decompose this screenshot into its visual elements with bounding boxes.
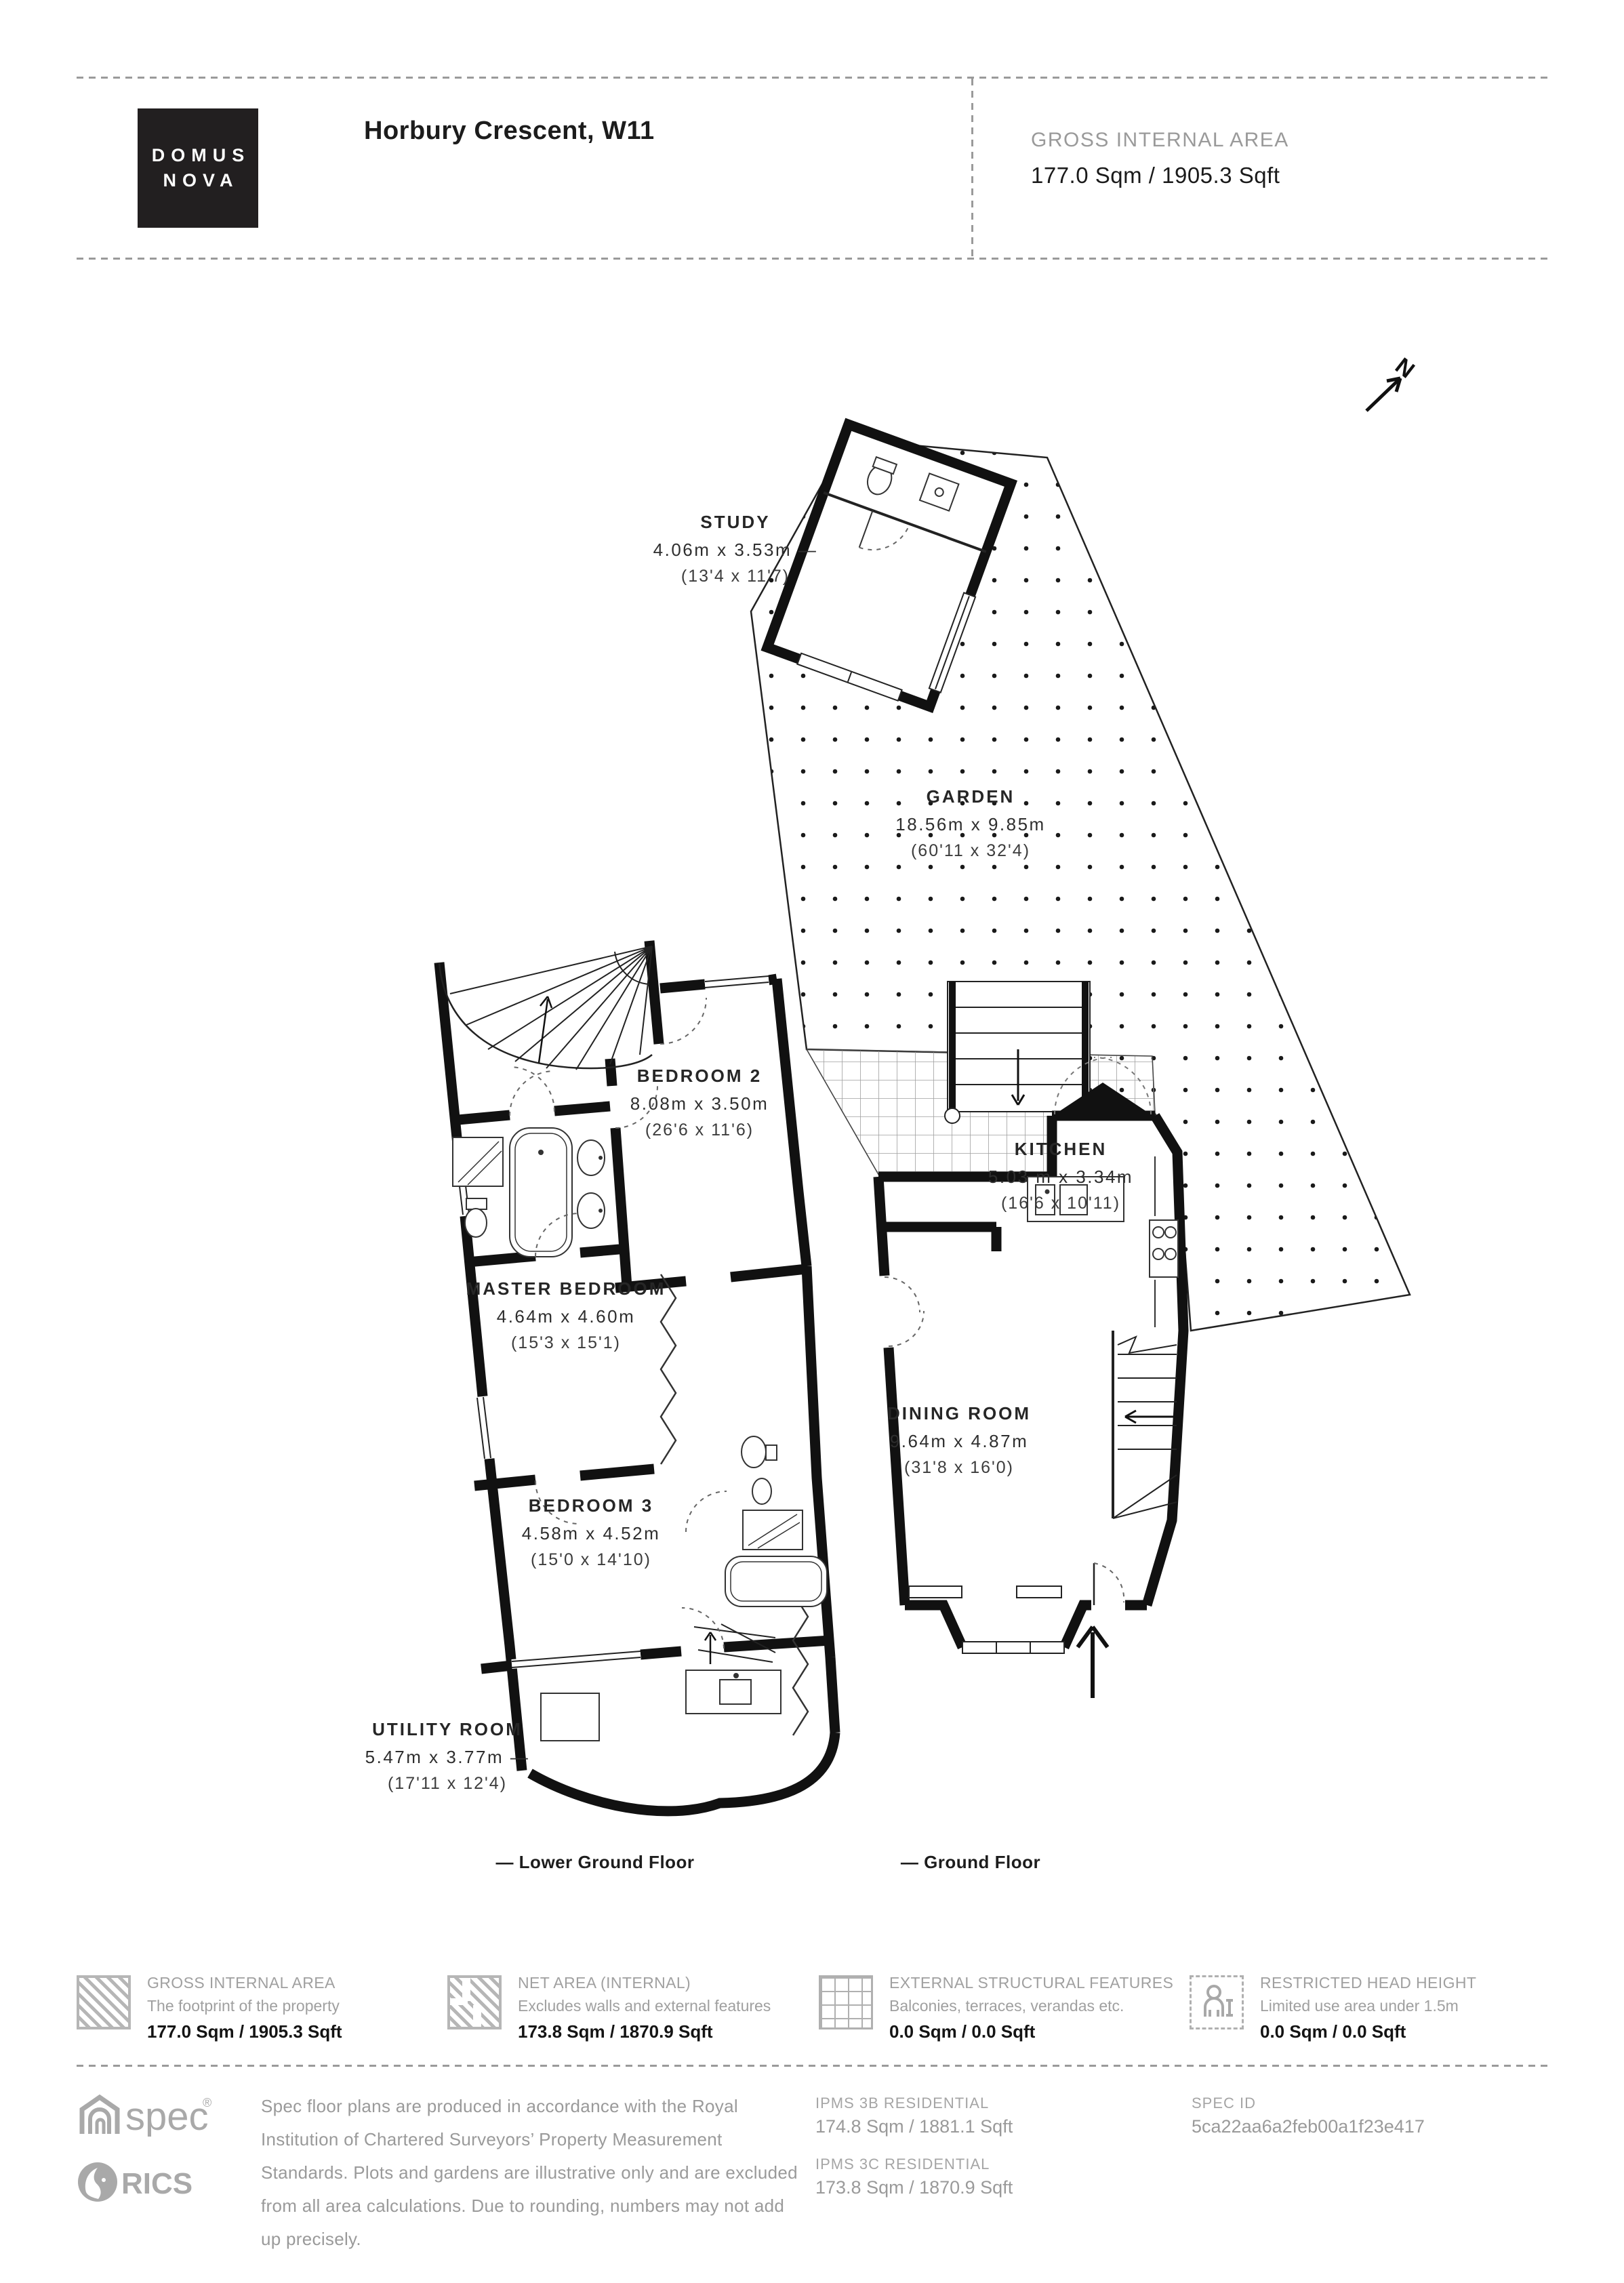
floor-caption-lower-ground: — Lower Ground Floor (495, 1852, 694, 1873)
ground-floor-plan (751, 424, 1410, 1698)
hatched-plan-icon (447, 1975, 502, 2029)
floorplan-page: DOMUS NOVA Horbury Crescent, W11 GROSS I… (0, 0, 1624, 2283)
header-bottom-dashed-rule (77, 258, 1547, 260)
ipms3b-label: IPMS 3B RESIDENTIAL (815, 2095, 989, 2112)
ipms3c-value: 173.8 Sqm / 1870.9 Sqft (815, 2177, 1013, 2198)
room-label-dining-room: DINING ROOM 9.64m x 4.87m (31'8 x 16'0) (887, 1403, 1031, 1478)
gross-internal-area-value: 177.0 Sqm / 1905.3 Sqft (1031, 163, 1280, 188)
disclaimer-line-5: up precisely. (261, 2229, 361, 2250)
domus-nova-logo: DOMUS NOVA (138, 108, 258, 228)
hatched-square-icon (77, 1975, 131, 2029)
north-arrow (1366, 378, 1400, 411)
disclaimer-line-1: Spec floor plans are produced in accorda… (261, 2096, 738, 2117)
top-dashed-rule (77, 77, 1547, 79)
disclaimer-line-2: Institution of Chartered Surveyors’ Prop… (261, 2129, 723, 2150)
entrance-arrow (1078, 1627, 1108, 1698)
specid-value: 5ca22aa6a2feb00a1f23e417 (1192, 2116, 1425, 2137)
room-label-utility-room: UTILITY ROOM 5.47m x 3.77m — (17'11 x 12… (365, 1719, 530, 1794)
room-label-garden: GARDEN 18.56m x 9.85m (60'11 x 32'4) (895, 786, 1045, 861)
room-label-bedroom-2: BEDROOM 2 8.08m x 3.50m (26'6 x 11'6) (630, 1066, 769, 1140)
legend-restricted-head-height: RESTRICTED HEAD HEIGHT Limited use area … (1190, 1974, 1556, 2035)
legend-gross-internal-area: GROSS INTERNAL AREA The footprint of the… (77, 1974, 443, 2035)
disclaimer-line-4: from all area calculations. Due to round… (261, 2196, 784, 2217)
room-label-kitchen: KITCHEN 5.03 m x 3.34m (16'6 x 10'11) (988, 1139, 1133, 1213)
room-label-bedroom-3: BEDROOM 3 4.58m x 4.52m (15'0 x 14'10) (522, 1495, 660, 1570)
footer-dashed-rule (77, 2065, 1547, 2067)
logo-line-1: DOMUS (146, 143, 251, 168)
gross-internal-area-label: GROSS INTERNAL AREA (1031, 129, 1289, 152)
grid-square-icon (819, 1975, 873, 2029)
ipms3c-label: IPMS 3C RESIDENTIAL (815, 2156, 990, 2173)
disclaimer-line-3: Standards. Plots and gardens are illustr… (261, 2162, 798, 2183)
svg-text:spec: spec (125, 2095, 209, 2137)
page-title: Horbury Crescent, W11 (364, 117, 655, 146)
legend-net-area: NET AREA (INTERNAL) Excludes walls and e… (447, 1974, 813, 2035)
ipms3b-value: 174.8 Sqm / 1881.1 Sqft (815, 2116, 1013, 2137)
floor-caption-ground: — Ground Floor (901, 1852, 1040, 1873)
svg-text:®: ® (203, 2096, 211, 2109)
svg-text:RICS: RICS (121, 2167, 192, 2200)
legend-external-features: EXTERNAL STRUCTURAL FEATURES Balconies, … (819, 1974, 1185, 2035)
rics-logo: RICS (77, 2160, 219, 2204)
specid-label: SPEC ID (1192, 2095, 1256, 2112)
spec-logo: spec ® (77, 2092, 212, 2137)
room-label-study: STUDY 4.06m x 3.53m — (13'4 x 11'7) (653, 512, 818, 586)
room-label-master-bedroom: MASTER BEDROOM 4.64m x 4.60m (15'3 x 15'… (466, 1278, 666, 1353)
garden-steps (945, 982, 1093, 1123)
logo-line-2: NOVA (157, 168, 239, 193)
person-dashed-icon (1190, 1975, 1244, 2029)
header-divider-dashed (971, 79, 973, 258)
